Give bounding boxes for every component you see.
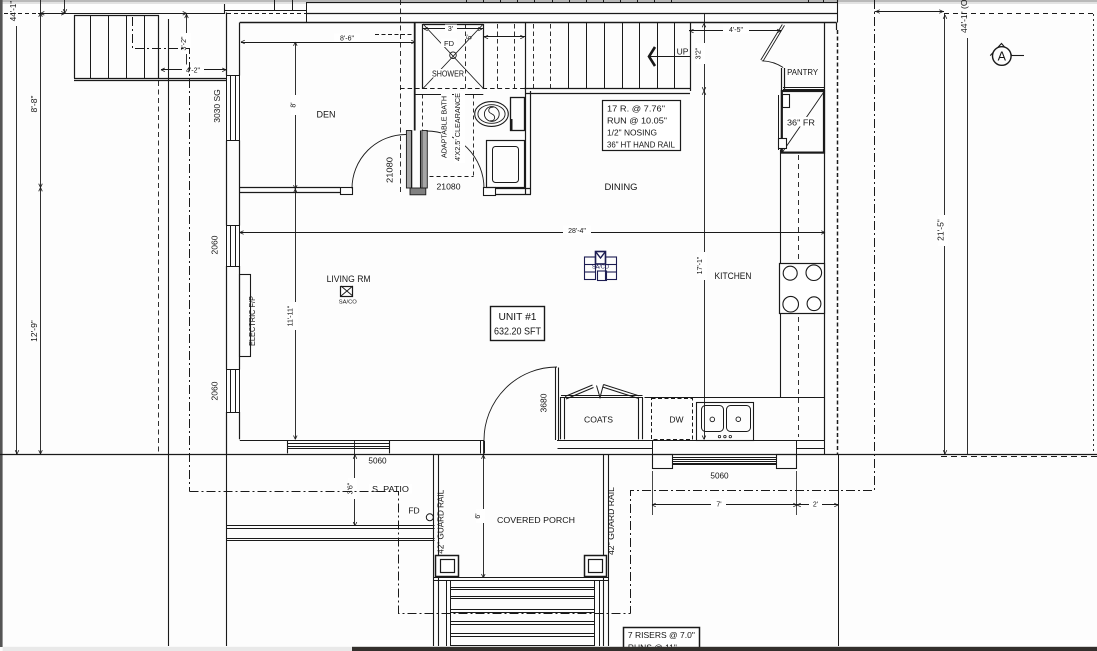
svg-text:4'X2.5' CLEARANCE: 4'X2.5' CLEARANCE xyxy=(453,93,462,161)
svg-text:632.20 SFT: 632.20 SFT xyxy=(494,327,541,338)
svg-text:RUN @ 10.05": RUN @ 10.05" xyxy=(607,117,667,126)
svg-text:PANTRY: PANTRY xyxy=(787,68,819,77)
svg-text:SHOWER: SHOWER xyxy=(432,70,464,79)
svg-text:17'-1": 17'-1" xyxy=(697,256,704,274)
svg-text:LIVING RM: LIVING RM xyxy=(327,274,371,284)
svg-text:7': 7' xyxy=(716,502,721,509)
svg-text:5': 5' xyxy=(467,34,474,39)
svg-text:8': 8' xyxy=(291,102,298,107)
svg-text:36" FR: 36" FR xyxy=(787,118,815,128)
svg-text:44'-1" (O: 44'-1" (O xyxy=(959,0,969,33)
svg-text:28'-4": 28'-4" xyxy=(568,228,586,235)
svg-text:COATS: COATS xyxy=(584,416,614,425)
svg-text:4'-5": 4'-5" xyxy=(729,27,743,34)
svg-text:42" GUARD RAIL: 42" GUARD RAIL xyxy=(607,486,616,555)
svg-text:DW: DW xyxy=(669,415,683,425)
svg-text:ADAPTABLE BATH: ADAPTABLE BATH xyxy=(440,96,449,158)
svg-text:21080: 21080 xyxy=(437,183,462,192)
svg-text:11'-11": 11'-11" xyxy=(288,305,295,326)
svg-text:36" HT HAND RAIL: 36" HT HAND RAIL xyxy=(607,141,676,150)
svg-text:3'2": 3'2" xyxy=(696,47,703,59)
svg-text:4'-2": 4'-2" xyxy=(186,68,200,75)
svg-text:FD: FD xyxy=(408,506,419,516)
svg-text:KITCHEN: KITCHEN xyxy=(715,271,752,281)
svg-text:A: A xyxy=(998,50,1007,64)
svg-text:COVERED PORCH: COVERED PORCH xyxy=(497,515,575,525)
svg-text:6': 6' xyxy=(475,513,482,518)
svg-text:21080: 21080 xyxy=(386,156,395,183)
svg-text:SA/CO: SA/CO xyxy=(339,300,358,306)
svg-text:2060: 2060 xyxy=(210,381,220,400)
svg-text:5060: 5060 xyxy=(368,457,387,466)
svg-text:3030 SG: 3030 SG xyxy=(212,89,222,123)
svg-text:42" GUARD RAIL: 42" GUARD RAIL xyxy=(437,489,446,554)
svg-text:2': 2' xyxy=(813,502,818,509)
svg-text:UP: UP xyxy=(677,47,689,57)
svg-text:UNIT #1: UNIT #1 xyxy=(499,312,537,323)
svg-text:DINING: DINING xyxy=(605,182,638,192)
svg-text:S. PATIO: S. PATIO xyxy=(372,484,409,494)
svg-text:44'-1": 44'-1" xyxy=(9,1,18,22)
svg-text:12'-9": 12'-9" xyxy=(29,320,39,342)
svg-text:3': 3' xyxy=(448,26,453,33)
svg-text:8'-6": 8'-6" xyxy=(340,36,354,43)
svg-text:8'-8": 8'-8" xyxy=(29,96,39,113)
svg-text:1/2" NOSING: 1/2" NOSING xyxy=(607,129,657,138)
svg-text:FD: FD xyxy=(444,39,455,48)
svg-text:17 R. @ 7.76": 17 R. @ 7.76" xyxy=(607,105,665,114)
svg-text:3'6": 3'6" xyxy=(348,482,355,494)
svg-text:DEN: DEN xyxy=(317,110,336,120)
svg-text:ELECTRIC F/P: ELECTRIC F/P xyxy=(248,296,257,346)
svg-text:5060: 5060 xyxy=(710,472,729,481)
svg-text:21'-5": 21'-5" xyxy=(936,219,946,241)
svg-text:SA/CO: SA/CO xyxy=(592,265,610,271)
svg-text:3680: 3680 xyxy=(539,393,549,412)
svg-text:7 RISERS @ 7.0": 7 RISERS @ 7.0" xyxy=(628,631,695,640)
svg-text:2060: 2060 xyxy=(210,235,220,254)
